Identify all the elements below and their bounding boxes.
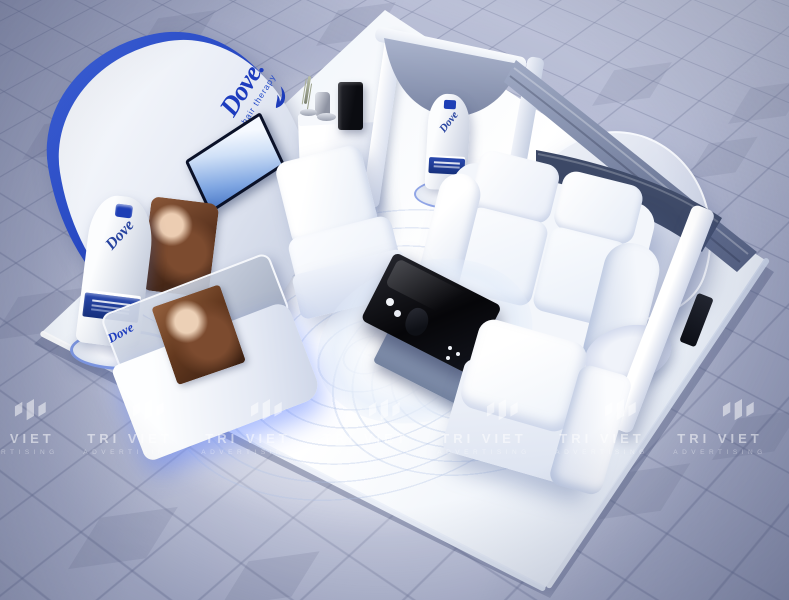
decor-dot [456, 352, 460, 356]
decor-dot [446, 356, 450, 360]
decor-dot [448, 346, 452, 350]
booth-render: Dove. hair therapy [0, 0, 789, 600]
label-text-lines [92, 299, 130, 306]
bottle-brand-text: Dove [96, 210, 144, 261]
